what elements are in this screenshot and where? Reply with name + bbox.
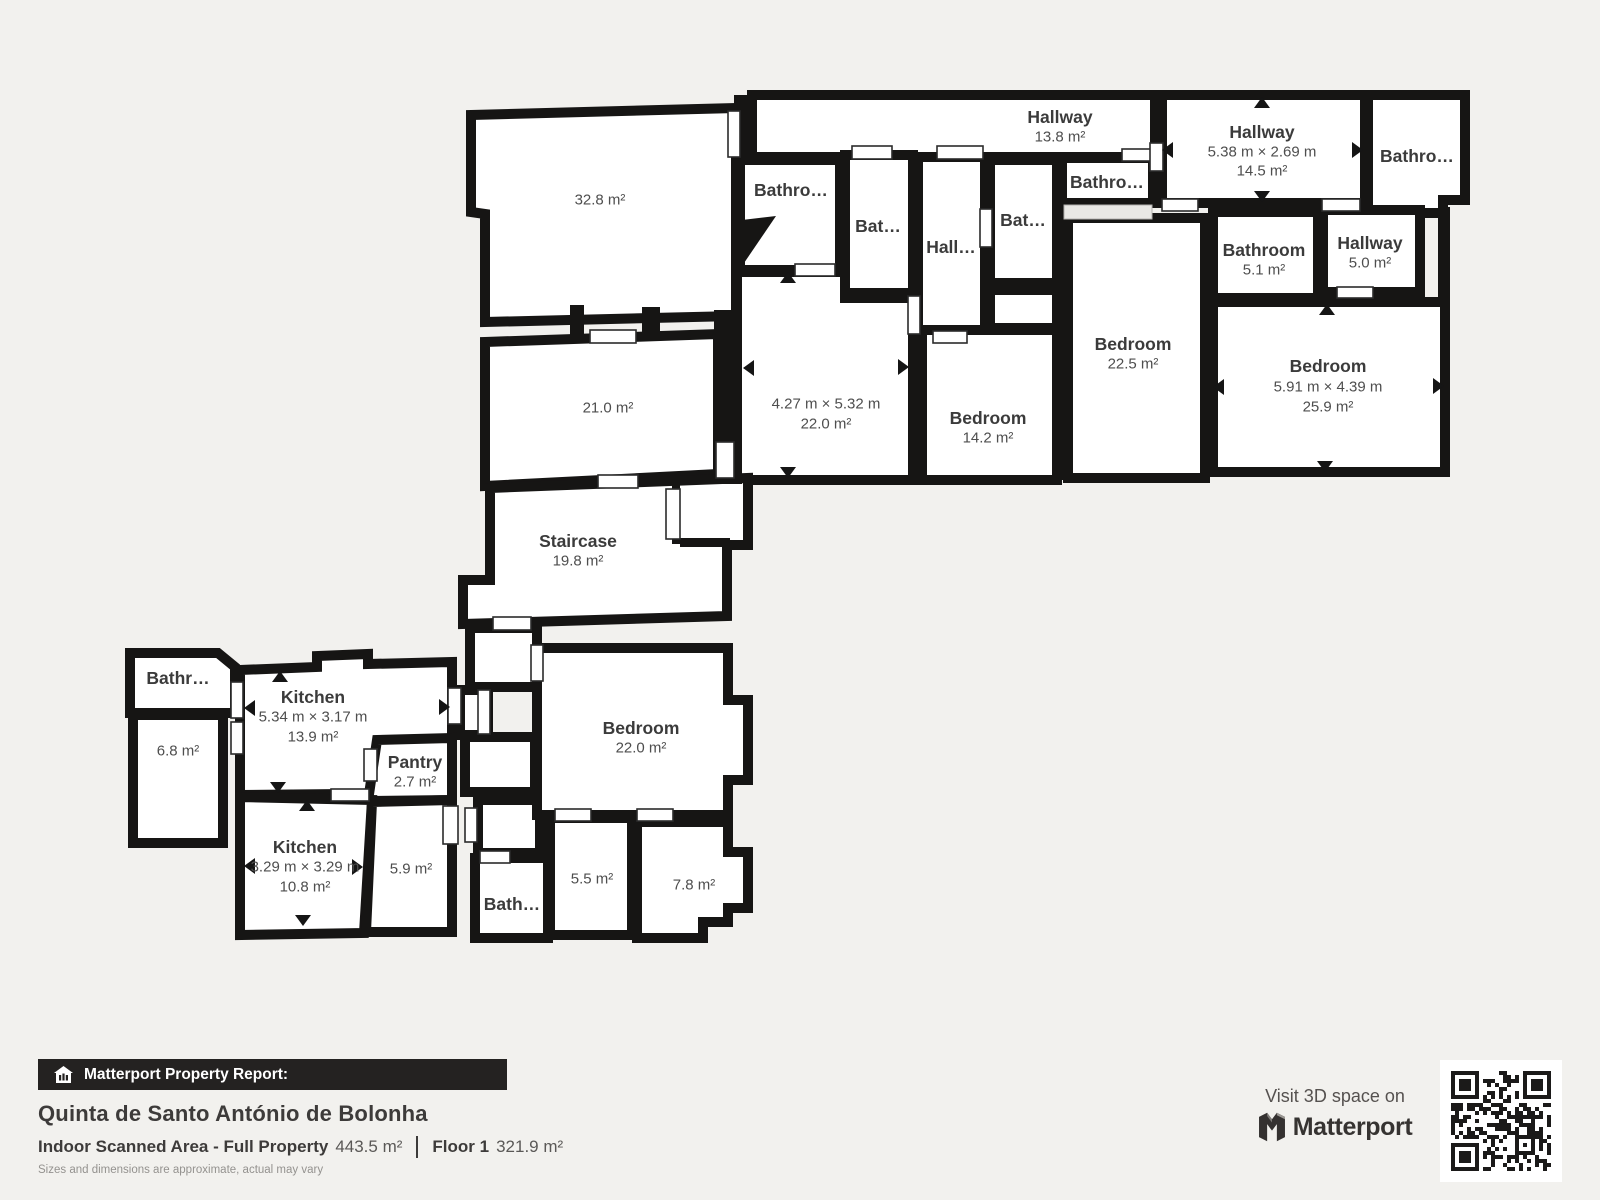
- label-bedroom-14-2-name: Bedroom: [950, 408, 1027, 428]
- house-icon: [54, 1066, 73, 1083]
- label-bathroom-z: Bath…: [484, 894, 540, 914]
- label-6-8-area: 6.8 m²: [157, 743, 200, 760]
- label-hallway-5-0-area: 5.0 m²: [1349, 255, 1392, 272]
- label-hallway-14-5-dims: 5.38 m × 2.69 m: [1208, 144, 1317, 161]
- visit-3d-text: Visit 3D space on: [1240, 1086, 1430, 1107]
- property-title: Quinta de Santo António de Bolonha: [38, 1101, 738, 1127]
- label-bedroom-14-2-area: 14.2 m²: [963, 430, 1014, 447]
- label-bedroom-25-9-name: Bedroom: [1290, 356, 1367, 376]
- scanned-area-label: Indoor Scanned Area - Full Property: [38, 1137, 328, 1157]
- room-6-8: [133, 715, 223, 843]
- label-pantry-name: Pantry: [388, 752, 443, 772]
- label-kitchen-13-9-area: 13.9 m²: [288, 729, 339, 746]
- label-kitchen-13-9-dims: 5.34 m × 3.17 m: [259, 709, 368, 726]
- room-32-8: [471, 108, 736, 322]
- label-bathroom-e: Bathro…: [1070, 172, 1144, 192]
- label-5-5-area: 5.5 m²: [571, 871, 614, 888]
- corridor-3: [465, 737, 535, 792]
- matterport-brand-row: Matterport: [1240, 1112, 1430, 1142]
- label-bedroom-25-9-dims: 5.91 m × 4.39 m: [1274, 379, 1383, 396]
- report-badge: Matterport Property Report:: [38, 1059, 507, 1090]
- corridor-1: [470, 628, 537, 687]
- area-stats: Indoor Scanned Area - Full Property 443.…: [38, 1136, 738, 1158]
- label-hallway-13-8-area: 13.8 m²: [1035, 129, 1086, 146]
- label-staircase-name: Staircase: [539, 531, 617, 551]
- label-21-0-area: 21.0 m²: [583, 400, 634, 417]
- room-22-0-upper: [737, 272, 913, 480]
- floor-label: Floor 1: [432, 1137, 489, 1157]
- label-kitchen-13-9-name: Kitchen: [281, 687, 345, 707]
- label-bedroom-25-9-area: 25.9 m²: [1303, 399, 1354, 416]
- label-bathroom-5-1-name: Bathroom: [1223, 240, 1306, 260]
- floor-plan: Hallway 13.8 m² Hallway 5.38 m × 2.69 m …: [0, 0, 1600, 1010]
- scanned-area-value: 443.5 m²: [335, 1137, 402, 1157]
- label-22-0-upper-area: 22.0 m²: [801, 416, 852, 433]
- label-kitchen-10-8-area: 10.8 m²: [280, 879, 331, 896]
- matterport-cta[interactable]: Visit 3D space on Matterport: [1240, 1086, 1430, 1142]
- label-bathroom-d: Bat…: [1000, 210, 1046, 230]
- label-32-8-area: 32.8 m²: [575, 192, 626, 209]
- label-bedroom-22-5-area: 22.5 m²: [1108, 356, 1159, 373]
- corridor-4: [478, 800, 540, 853]
- label-hallway-13-8-name: Hallway: [1027, 107, 1092, 127]
- label-bedroom-22-0-name: Bedroom: [603, 718, 680, 738]
- matterport-logo-icon: [1258, 1112, 1286, 1142]
- label-kitchen-10-8-name: Kitchen: [273, 837, 337, 857]
- rooms: [130, 95, 1465, 938]
- label-hallway-5-0-name: Hallway: [1337, 233, 1402, 253]
- label-bedroom-22-0-area: 22.0 m²: [616, 740, 667, 757]
- floor-value: 321.9 m²: [496, 1137, 563, 1157]
- label-kitchen-10-8-dims: 3.29 m × 3.29 m: [251, 859, 360, 876]
- matterport-wordmark: Matterport: [1293, 1113, 1413, 1142]
- room-bedroom-14-2: [922, 330, 1057, 480]
- room-closet: [990, 290, 1057, 328]
- label-hallway-14-5-area: 14.5 m²: [1237, 163, 1288, 180]
- label-bathroom-5-1-area: 5.1 m²: [1243, 262, 1286, 279]
- label-hallway-14-5-name: Hallway: [1229, 122, 1294, 142]
- label-5-9-area: 5.9 m²: [390, 861, 433, 878]
- room-staircase: [463, 478, 748, 624]
- label-bathroom-s: Bathr…: [146, 668, 209, 688]
- label-bedroom-22-5-name: Bedroom: [1095, 334, 1172, 354]
- label-22-0-upper-dims: 4.27 m × 5.32 m: [772, 396, 881, 413]
- report-badge-label: Matterport Property Report:: [84, 1066, 288, 1084]
- label-bathroom-b: Bat…: [855, 216, 901, 236]
- label-staircase-area: 19.8 m²: [553, 553, 604, 570]
- room-bathroom-a: [740, 160, 840, 270]
- qr-code: [1440, 1060, 1562, 1182]
- disclaimer: Sizes and dimensions are approximate, ac…: [38, 1164, 738, 1176]
- label-pantry-area: 2.7 m²: [394, 774, 437, 791]
- label-bathroom-top-right: Bathro…: [1380, 146, 1454, 166]
- label-7-8-area: 7.8 m²: [673, 877, 716, 894]
- wall-shadow: [1064, 205, 1152, 219]
- label-hallway-c: Hall…: [926, 237, 976, 257]
- report-footer: Matterport Property Report: Quinta de Sa…: [38, 1059, 738, 1176]
- label-bathroom-a: Bathro…: [754, 180, 828, 200]
- stats-divider: [416, 1136, 418, 1158]
